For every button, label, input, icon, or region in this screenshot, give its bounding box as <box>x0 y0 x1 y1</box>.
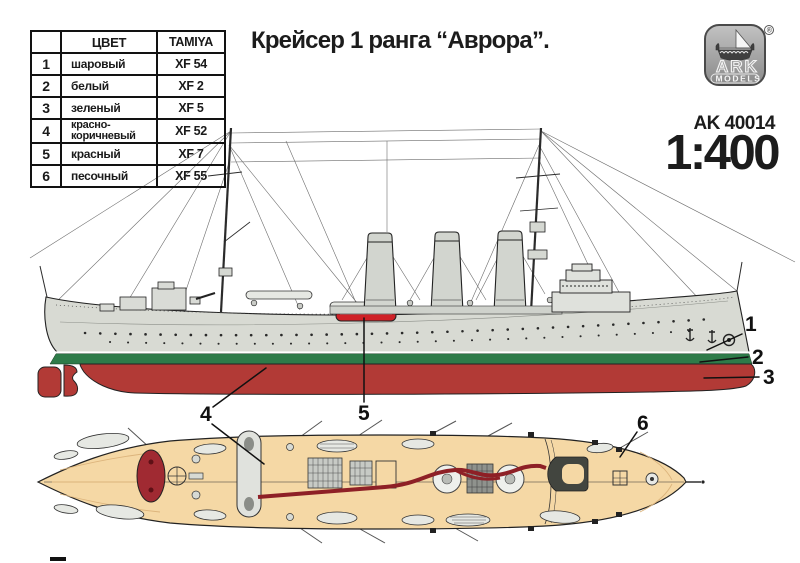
svg-text:1: 1 <box>745 313 757 336</box>
row-tamiya: XF 52 <box>157 119 225 143</box>
ark-models-logo: ARK MODELS ® <box>703 22 775 88</box>
oval-detail-dot <box>149 460 154 465</box>
row-num: 6 <box>31 165 61 187</box>
table-row: 6 песочный XF 55 <box>31 165 225 187</box>
table-row: 5 красный XF 7 <box>31 143 225 165</box>
row-color: зеленый <box>61 97 157 119</box>
page-edge-mark <box>50 557 66 561</box>
row-color: красный <box>61 143 157 165</box>
underwater-hull-red <box>80 364 755 394</box>
row-num: 1 <box>31 53 61 75</box>
table-row: 2 белый XF 2 <box>31 75 225 97</box>
instruction-sheet: 1 2 3 4 5 6 <box>0 0 800 563</box>
row-color: шаровый <box>61 53 157 75</box>
logo-models-text: MODELS <box>716 74 762 84</box>
row-num: 4 <box>31 119 61 143</box>
header-color: ЦВЕТ <box>61 31 157 53</box>
fore-superstructure <box>552 264 630 312</box>
header-blank <box>31 31 61 53</box>
svg-text:6: 6 <box>637 412 649 435</box>
deck-oval-red-structure <box>137 450 165 502</box>
horseshoe-inner <box>562 464 584 484</box>
svg-text:2: 2 <box>752 346 764 369</box>
bow-spike-tip <box>701 480 704 483</box>
gun-platform-2-center <box>505 474 515 484</box>
funnels <box>364 231 526 312</box>
row-tamiya: XF 7 <box>157 143 225 165</box>
row-tamiya: XF 55 <box>157 165 225 187</box>
header-tamiya: TAMIYA <box>157 31 225 53</box>
waterline-stripe-green <box>50 354 752 364</box>
registered-mark: ® <box>767 27 773 35</box>
table-row: 3 зеленый XF 5 <box>31 97 225 119</box>
row-num: 3 <box>31 97 61 119</box>
table-row: 1 шаровый XF 54 <box>31 53 225 75</box>
row-color: песочный <box>61 165 157 187</box>
row-num: 2 <box>31 75 61 97</box>
gun-platform-1-center <box>442 474 452 484</box>
hull-side-grey <box>45 291 749 352</box>
kit-scale: 1:400 <box>665 125 778 181</box>
ship-boat-grey-aft <box>246 291 312 299</box>
dumbbell-bottom-vent <box>244 497 254 511</box>
row-tamiya: XF 54 <box>157 53 225 75</box>
row-color: красно-коричневый <box>61 119 157 143</box>
rudder-red <box>38 367 61 397</box>
svg-text:5: 5 <box>358 402 370 425</box>
callout-6: 6 <box>620 412 649 457</box>
row-num: 5 <box>31 143 61 165</box>
midship-deckhouse <box>330 306 562 314</box>
row-tamiya: XF 2 <box>157 75 225 97</box>
color-table: ЦВЕТ TAMIYA 1 шаровый XF 54 2 белый XF 2… <box>30 30 226 188</box>
svg-text:4: 4 <box>200 403 212 426</box>
top-view <box>38 420 705 543</box>
row-tamiya: XF 5 <box>157 97 225 119</box>
sternpost-red <box>64 365 78 396</box>
capstan-center <box>650 477 654 481</box>
oval-detail-dot2 <box>149 488 154 493</box>
row-color: белый <box>61 75 157 97</box>
color-table-container: ЦВЕТ TAMIYA 1 шаровый XF 54 2 белый XF 2… <box>30 30 226 188</box>
boot-line-white <box>55 351 750 353</box>
page-title: Крейсер 1 ранга “Аврора”. <box>235 27 565 55</box>
table-header-row: ЦВЕТ TAMIYA <box>31 31 225 53</box>
table-row: 4 красно-коричневый XF 52 <box>31 119 225 143</box>
svg-text:3: 3 <box>763 366 775 389</box>
